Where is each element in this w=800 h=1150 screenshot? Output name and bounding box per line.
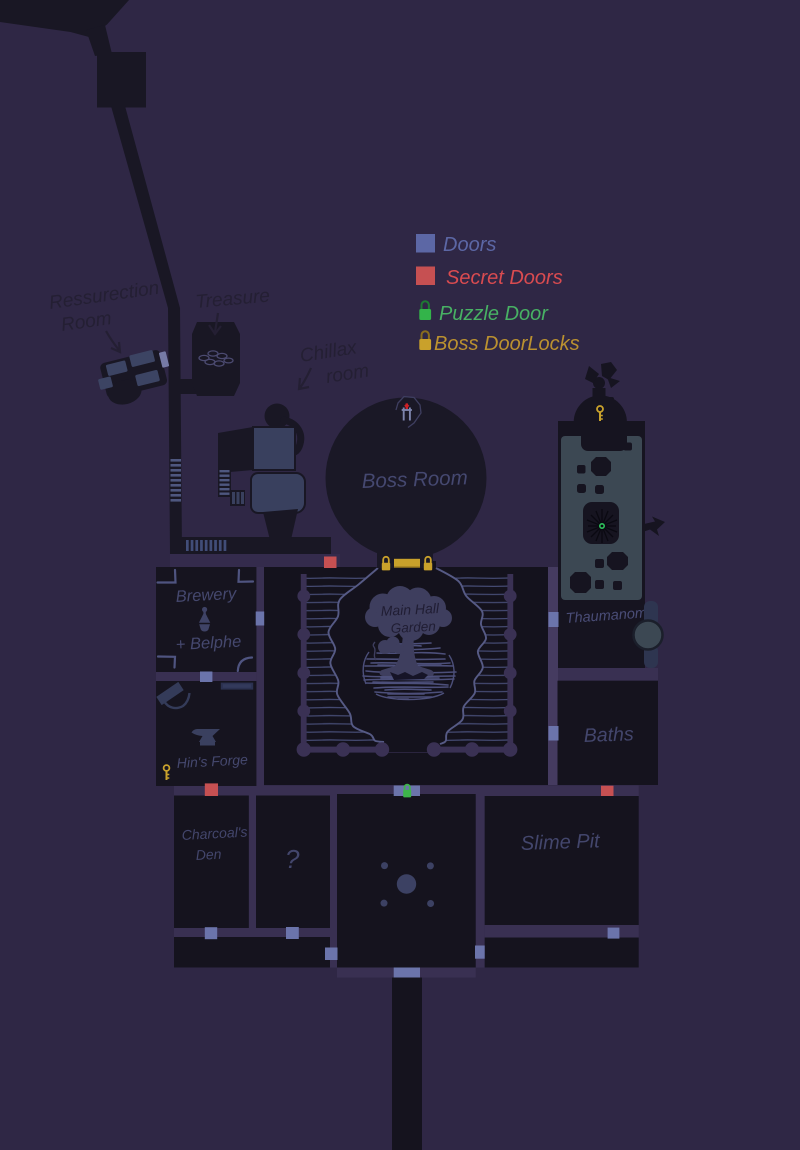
svg-text:Brewery: Brewery [175,585,238,606]
svg-text:Baths: Baths [583,723,634,747]
svg-text:Boss DoorLocks: Boss DoorLocks [434,333,580,355]
svg-text:Main Hall: Main Hall [380,600,440,619]
svg-text:Den: Den [195,846,222,863]
svg-text:Secret Doors: Secret Doors [446,267,563,289]
svg-text:Doors: Doors [443,234,496,256]
svg-text:Garden: Garden [390,619,436,636]
svg-text:Boss Room: Boss Room [361,466,468,493]
svg-text:?: ? [285,844,300,874]
svg-text:Slime Pit: Slime Pit [520,830,601,855]
svg-text:+ Belphe: + Belphe [175,633,241,654]
svg-text:Puzzle Door: Puzzle Door [439,303,549,325]
